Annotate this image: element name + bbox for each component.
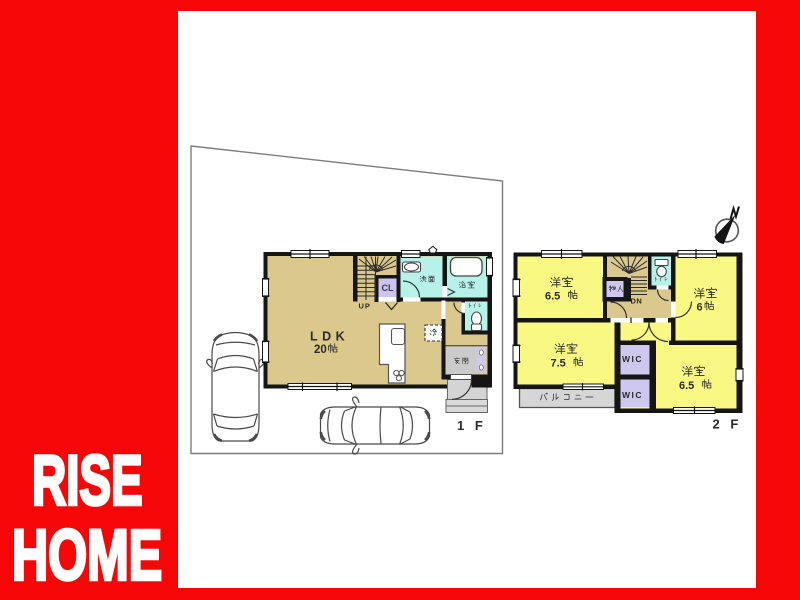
svg-text:RISE: RISE	[32, 441, 143, 520]
svg-text:HOME: HOME	[12, 516, 162, 596]
